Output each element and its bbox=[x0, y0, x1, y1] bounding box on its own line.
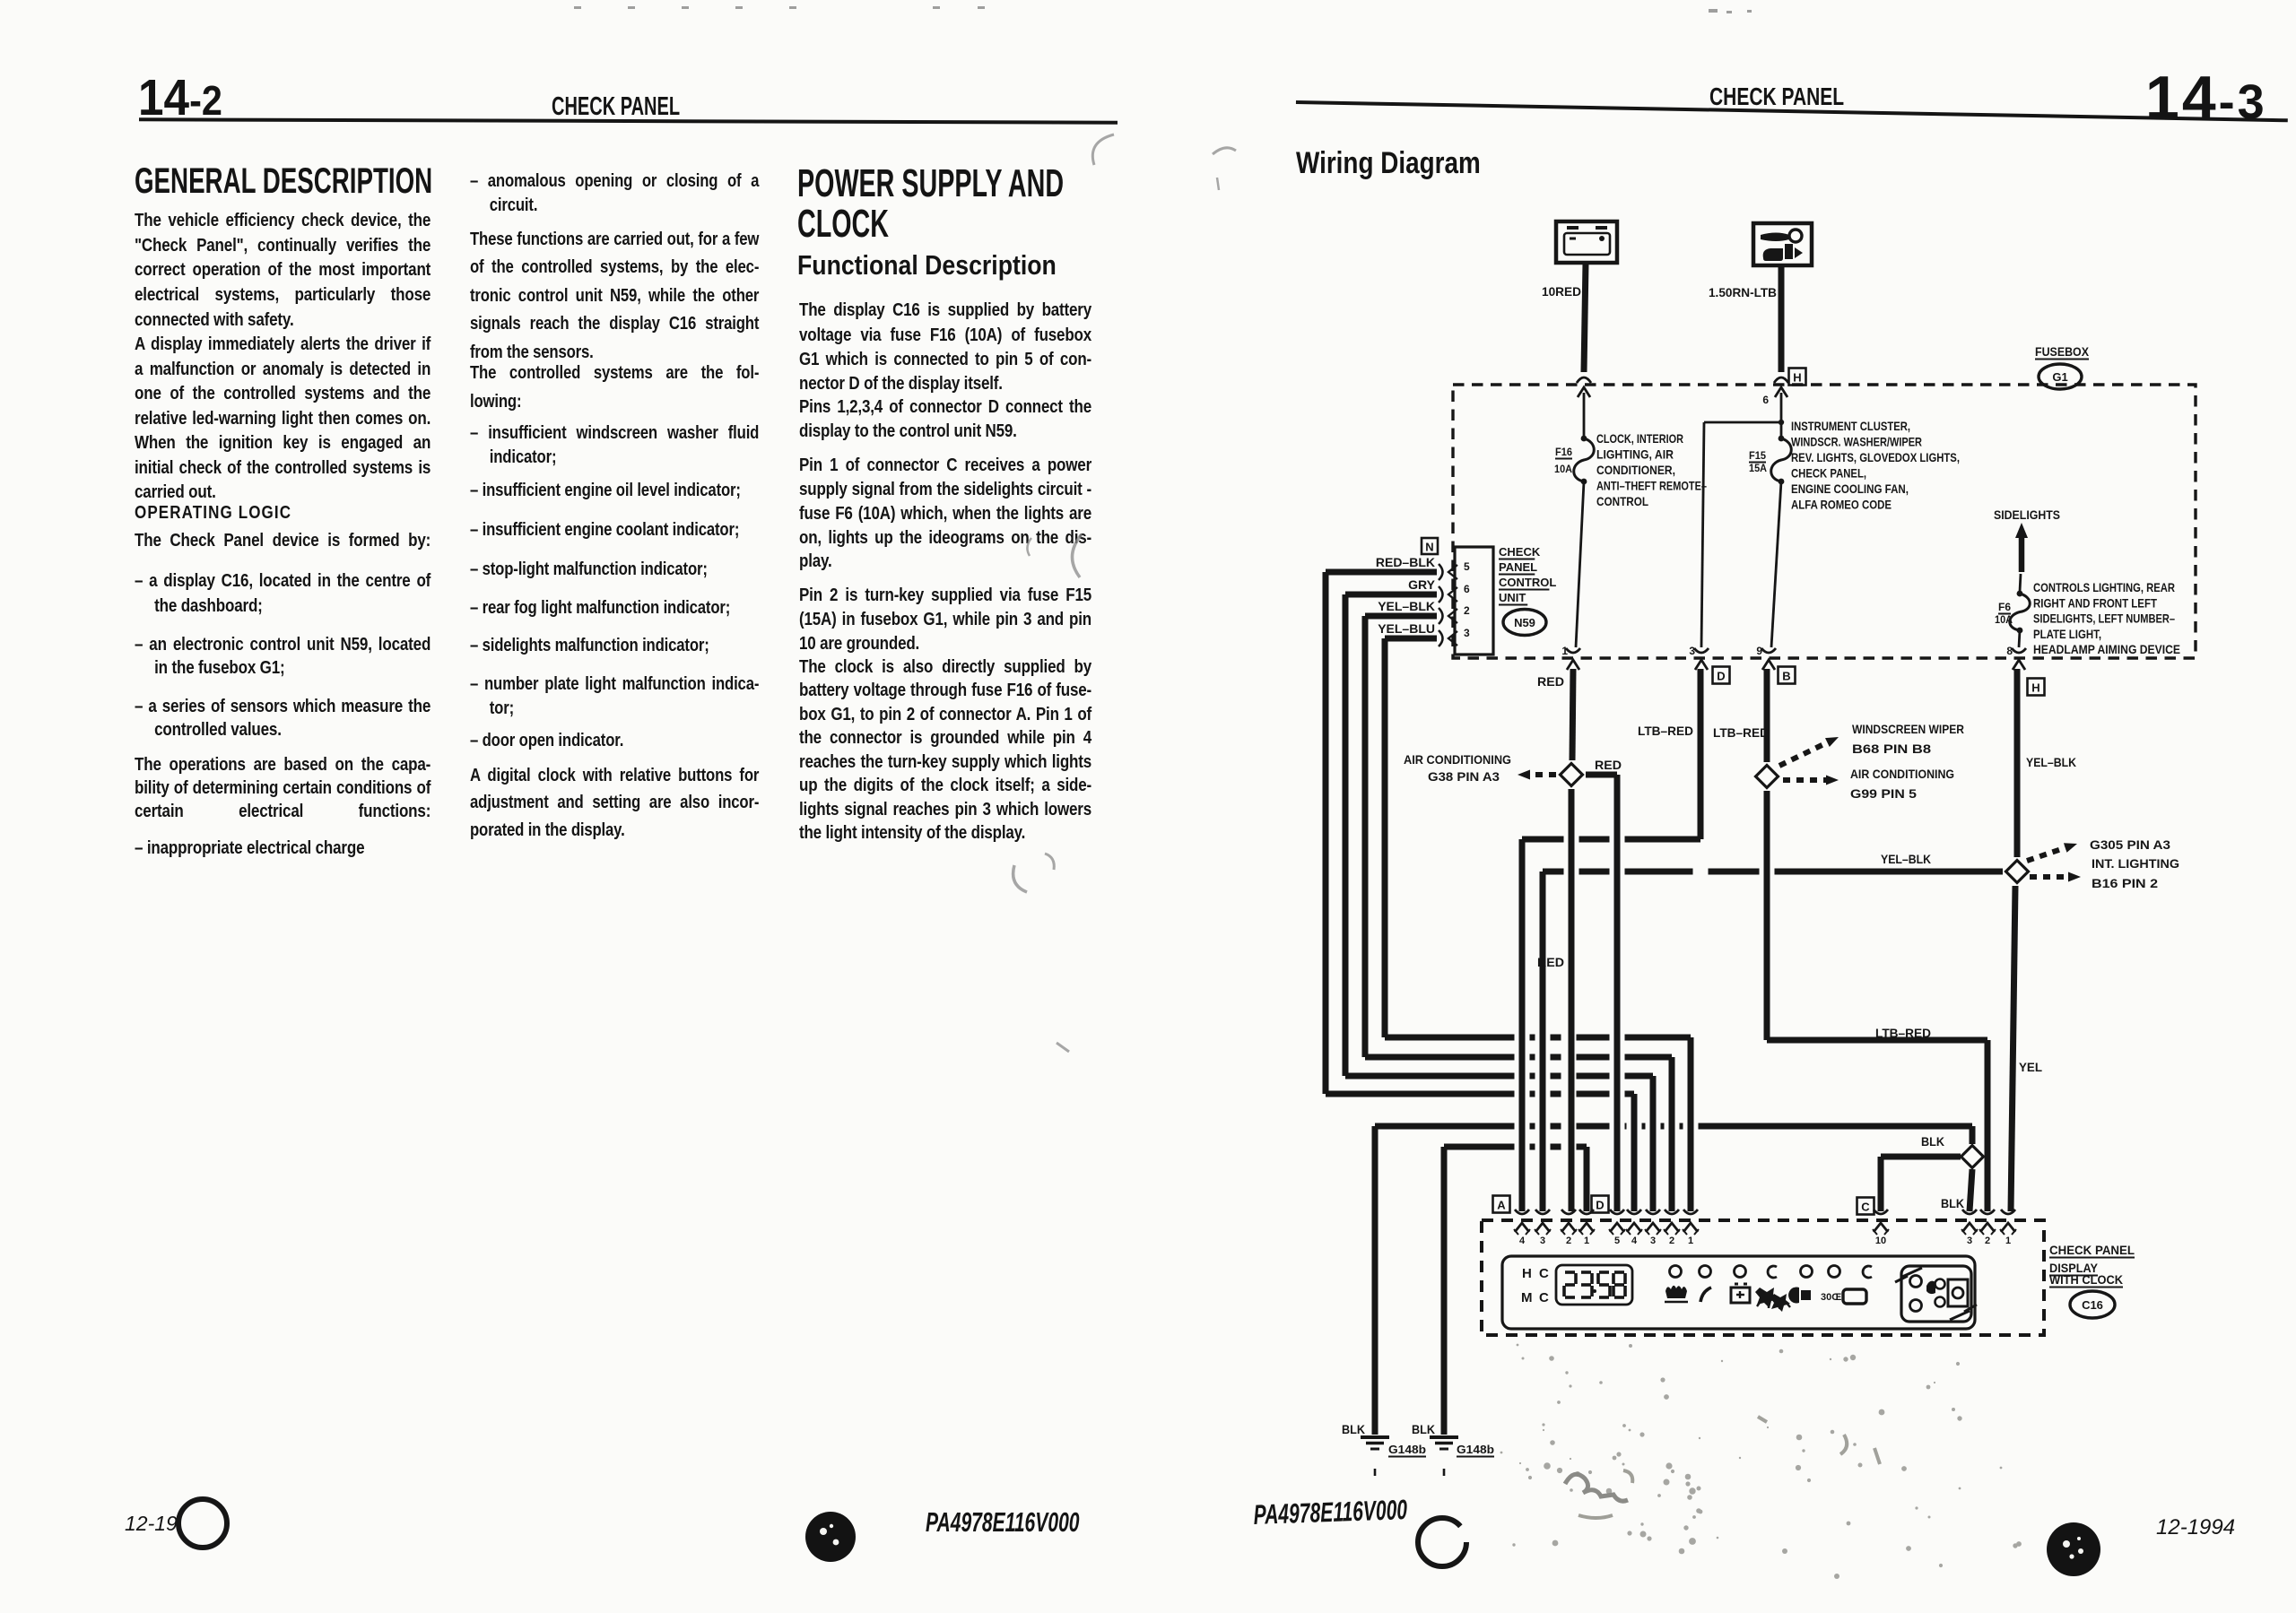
svg-text:2: 2 bbox=[1985, 1236, 1990, 1246]
svg-text:YEL–BLU: YEL–BLU bbox=[1378, 621, 1435, 636]
svg-text:B: B bbox=[1782, 670, 1790, 683]
svg-text:LTB–RED: LTB–RED bbox=[1875, 1026, 1931, 1040]
svg-text:RED: RED bbox=[1537, 674, 1564, 689]
svg-text:C: C bbox=[1861, 1201, 1870, 1214]
svg-text:10: 10 bbox=[1875, 1236, 1886, 1246]
svg-text:8: 8 bbox=[2006, 645, 2013, 657]
svg-text:N59: N59 bbox=[1514, 616, 1535, 629]
svg-text:B16 PIN 2: B16 PIN 2 bbox=[2092, 876, 2158, 890]
svg-text:3: 3 bbox=[1650, 1236, 1656, 1246]
svg-text:30Œ: 30Œ bbox=[1821, 1292, 1841, 1303]
svg-text:10A: 10A bbox=[1995, 613, 2013, 626]
svg-text:WINDSCR. WASHER/WIPER: WINDSCR. WASHER/WIPER bbox=[1791, 435, 1922, 449]
svg-text:2: 2 bbox=[1464, 604, 1470, 617]
svg-text:SIDELIGHTS: SIDELIGHTS bbox=[1994, 507, 2060, 522]
svg-text:WINDSCREEN WIPER: WINDSCREEN WIPER bbox=[1852, 722, 1964, 736]
svg-text:1: 1 bbox=[2005, 1236, 2011, 1246]
svg-text:SIDELIGHTS, LEFT NUMBER–: SIDELIGHTS, LEFT NUMBER– bbox=[2033, 611, 2175, 626]
svg-text:H: H bbox=[1793, 371, 1801, 385]
svg-text:10A: 10A bbox=[1554, 463, 1572, 475]
svg-text:A: A bbox=[1497, 1199, 1506, 1212]
svg-text:AIR CONDITIONING: AIR CONDITIONING bbox=[1404, 752, 1511, 767]
svg-text:F6: F6 bbox=[1998, 601, 2011, 613]
svg-text:RIGHT AND FRONT LEFT: RIGHT AND FRONT LEFT bbox=[2033, 595, 2157, 610]
svg-text:4: 4 bbox=[1631, 1236, 1638, 1246]
svg-text:YEL: YEL bbox=[2019, 1060, 2042, 1074]
svg-text:G1: G1 bbox=[2052, 370, 2067, 384]
svg-text:ALFA ROMEO CODE: ALFA ROMEO CODE bbox=[1791, 498, 1892, 512]
svg-text:REV. LIGHTS, GLOVEDOX LIGHTS,: REV. LIGHTS, GLOVEDOX LIGHTS, bbox=[1791, 450, 1960, 464]
svg-text:D: D bbox=[1596, 1199, 1604, 1212]
svg-text:UNIT: UNIT bbox=[1499, 591, 1526, 604]
svg-text:CONTROL: CONTROL bbox=[1499, 576, 1556, 589]
svg-text:1: 1 bbox=[1584, 1236, 1589, 1246]
svg-text:C16: C16 bbox=[2082, 1298, 2103, 1312]
svg-text:CONTROLS LIGHTING, REAR: CONTROLS LIGHTING, REAR bbox=[2033, 580, 2175, 594]
svg-text:YEL–BLK: YEL–BLK bbox=[1881, 852, 1931, 866]
svg-text:BLK: BLK bbox=[1921, 1134, 1944, 1149]
svg-text:F16: F16 bbox=[1555, 446, 1572, 458]
svg-text:B68 PIN B8: B68 PIN B8 bbox=[1852, 741, 1931, 756]
svg-text:LIGHTING, AIR: LIGHTING, AIR bbox=[1596, 447, 1674, 462]
svg-text:6: 6 bbox=[1762, 394, 1769, 406]
svg-text:G305 PIN A3: G305 PIN A3 bbox=[2090, 837, 2170, 852]
svg-text:ANTI–THEFT REMOTE–: ANTI–THEFT REMOTE– bbox=[1596, 479, 1707, 493]
svg-text:CHECK PANEL: CHECK PANEL bbox=[2049, 1243, 2135, 1257]
svg-text:M: M bbox=[1521, 1290, 1533, 1305]
svg-text:BLK: BLK bbox=[1412, 1422, 1435, 1436]
svg-text:CHECK: CHECK bbox=[1499, 545, 1541, 559]
svg-text:3: 3 bbox=[1540, 1236, 1545, 1246]
svg-text:3: 3 bbox=[1967, 1236, 1972, 1246]
svg-text:9: 9 bbox=[1756, 645, 1762, 657]
svg-text:5: 5 bbox=[1464, 560, 1470, 573]
svg-text:H: H bbox=[1522, 1266, 1532, 1281]
svg-text:FUSEBOX: FUSEBOX bbox=[2035, 344, 2090, 359]
svg-text:N: N bbox=[1425, 541, 1433, 554]
svg-text:BLK: BLK bbox=[1342, 1422, 1365, 1436]
svg-text:CLOCK, INTERIOR: CLOCK, INTERIOR bbox=[1596, 431, 1683, 446]
svg-text:F15: F15 bbox=[1749, 449, 1766, 462]
svg-text:G38 PIN A3: G38 PIN A3 bbox=[1428, 769, 1500, 784]
svg-text:1: 1 bbox=[1561, 645, 1568, 657]
svg-text:C: C bbox=[1539, 1290, 1549, 1305]
svg-text:H: H bbox=[2031, 681, 2039, 695]
svg-text:2: 2 bbox=[1566, 1236, 1571, 1246]
svg-text:C: C bbox=[1539, 1266, 1549, 1281]
svg-text:RED: RED bbox=[1595, 758, 1622, 772]
svg-text:1.50RN-LTB: 1.50RN-LTB bbox=[1709, 285, 1777, 299]
svg-text:HEADLAMP AIMING DEVICE: HEADLAMP AIMING DEVICE bbox=[2033, 642, 2180, 656]
svg-text:AIR CONDITIONING: AIR CONDITIONING bbox=[1850, 767, 1954, 781]
svg-text:6: 6 bbox=[1464, 583, 1470, 595]
svg-text:CONDITIONER,: CONDITIONER, bbox=[1596, 463, 1675, 477]
svg-text:RED–BLK: RED–BLK bbox=[1376, 555, 1435, 569]
svg-text:INT. LIGHTING: INT. LIGHTING bbox=[2092, 856, 2179, 871]
svg-text:CONTROL: CONTROL bbox=[1596, 494, 1648, 508]
svg-text:LTB–RED: LTB–RED bbox=[1713, 725, 1769, 740]
svg-text:PANEL: PANEL bbox=[1499, 560, 1537, 574]
svg-text:ENGINE COOLING FAN,: ENGINE COOLING FAN, bbox=[1791, 481, 1909, 496]
svg-text:4: 4 bbox=[1519, 1236, 1526, 1246]
svg-text:GRY: GRY bbox=[1408, 577, 1435, 592]
svg-text:10RED: 10RED bbox=[1542, 284, 1581, 299]
svg-text:15A: 15A bbox=[1749, 462, 1767, 474]
svg-text:CHECK PANEL,: CHECK PANEL, bbox=[1791, 466, 1866, 481]
svg-text:G148b: G148b bbox=[1457, 1443, 1494, 1456]
svg-text:YEL–BLK: YEL–BLK bbox=[1378, 599, 1435, 613]
svg-text:BLK: BLK bbox=[1941, 1196, 1964, 1210]
svg-text:INSTRUMENT CLUSTER,: INSTRUMENT CLUSTER, bbox=[1791, 419, 1910, 433]
svg-text:WITH CLOCK: WITH CLOCK bbox=[2049, 1272, 2123, 1287]
svg-text:PLATE LIGHT,: PLATE LIGHT, bbox=[2033, 627, 2101, 641]
svg-text:1: 1 bbox=[1688, 1236, 1693, 1246]
svg-text:2: 2 bbox=[1669, 1236, 1674, 1246]
svg-text:5: 5 bbox=[1614, 1236, 1620, 1246]
svg-text:D: D bbox=[1717, 670, 1725, 683]
svg-text:3: 3 bbox=[1464, 627, 1470, 639]
svg-text:G99 PIN 5: G99 PIN 5 bbox=[1850, 786, 1917, 801]
svg-text:G148b: G148b bbox=[1388, 1443, 1426, 1456]
svg-text:YEL–BLK: YEL–BLK bbox=[2026, 755, 2076, 769]
svg-text:LTB–RED: LTB–RED bbox=[1638, 724, 1693, 738]
svg-text:3: 3 bbox=[1689, 645, 1695, 657]
